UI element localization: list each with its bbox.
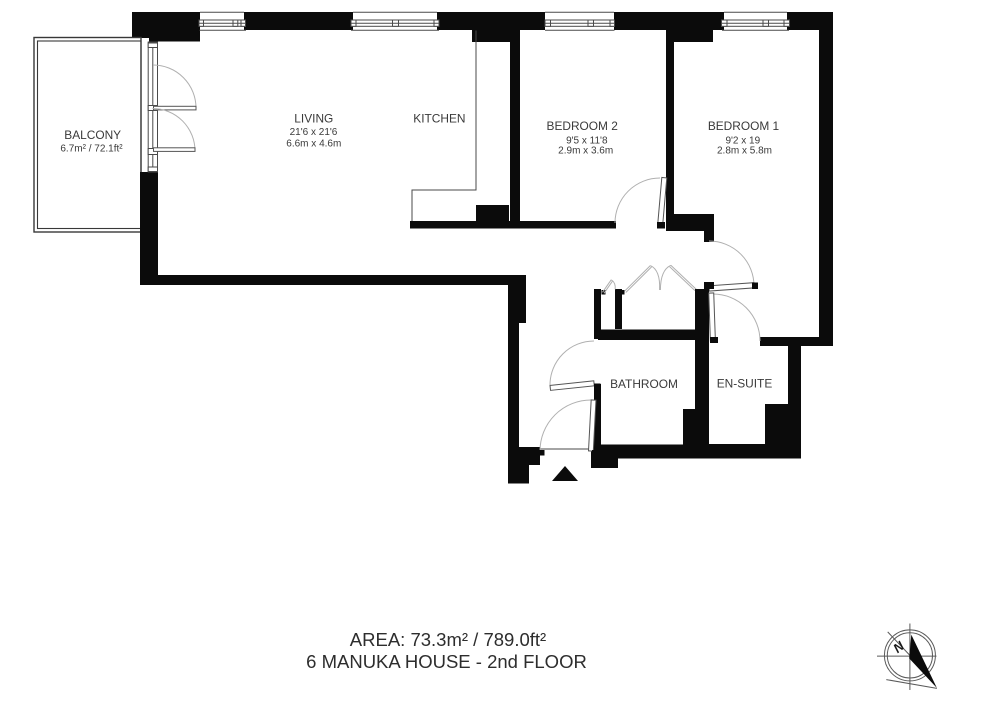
svg-text:6 MANUKA HOUSE - 2nd FLOOR: 6 MANUKA HOUSE - 2nd FLOOR [306,651,587,672]
svg-text:2.8m x 5.8m: 2.8m x 5.8m [717,146,772,157]
svg-text:6.6m x 4.6m: 6.6m x 4.6m [286,139,341,150]
svg-text:BEDROOM 1: BEDROOM 1 [708,119,780,133]
svg-text:6.7m² / 72.1ft²: 6.7m² / 72.1ft² [60,144,123,155]
svg-text:EN-SUITE: EN-SUITE [717,377,773,391]
svg-text:2.9m x 3.6m: 2.9m x 3.6m [558,146,613,157]
svg-text:KITCHEN: KITCHEN [413,112,465,126]
svg-text:BALCONY: BALCONY [64,128,121,142]
svg-text:21'6 x 21'6: 21'6 x 21'6 [290,127,338,138]
svg-text:LIVING: LIVING [294,112,333,126]
svg-text:BEDROOM 2: BEDROOM 2 [547,119,619,133]
svg-text:BATHROOM: BATHROOM [610,377,678,391]
svg-text:AREA: 73.3m² / 789.0ft²: AREA: 73.3m² / 789.0ft² [350,629,546,650]
